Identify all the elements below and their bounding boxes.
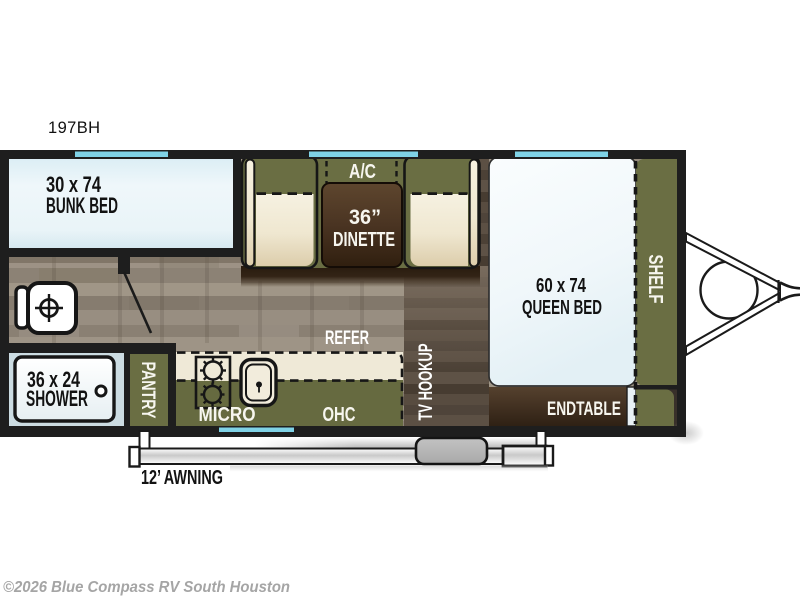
- svg-text:OHC: OHC: [323, 404, 356, 426]
- svg-text:DINETTE: DINETTE: [333, 229, 395, 251]
- svg-text:197BH: 197BH: [48, 119, 100, 137]
- svg-text:TV HOOKUP: TV HOOKUP: [415, 344, 437, 421]
- svg-text:60 x 74: 60 x 74: [536, 275, 587, 297]
- svg-text:BUNK BED: BUNK BED: [46, 193, 118, 218]
- svg-text:SHOWER: SHOWER: [26, 386, 88, 411]
- svg-text:QUEEN BED: QUEEN BED: [522, 297, 602, 319]
- svg-text:PANTRY: PANTRY: [137, 362, 159, 419]
- svg-text:A/C: A/C: [349, 161, 376, 183]
- svg-text:36”: 36”: [349, 206, 381, 229]
- svg-text:12’ AWNING: 12’ AWNING: [141, 467, 223, 489]
- svg-text:REFER: REFER: [325, 327, 369, 349]
- svg-text:©2026 Blue Compass RV South Ho: ©2026 Blue Compass RV South Houston: [3, 579, 290, 596]
- svg-text:ENDTABLE: ENDTABLE: [547, 399, 621, 420]
- svg-text:SHELF: SHELF: [644, 255, 666, 304]
- svg-text:MICRO: MICRO: [199, 404, 256, 426]
